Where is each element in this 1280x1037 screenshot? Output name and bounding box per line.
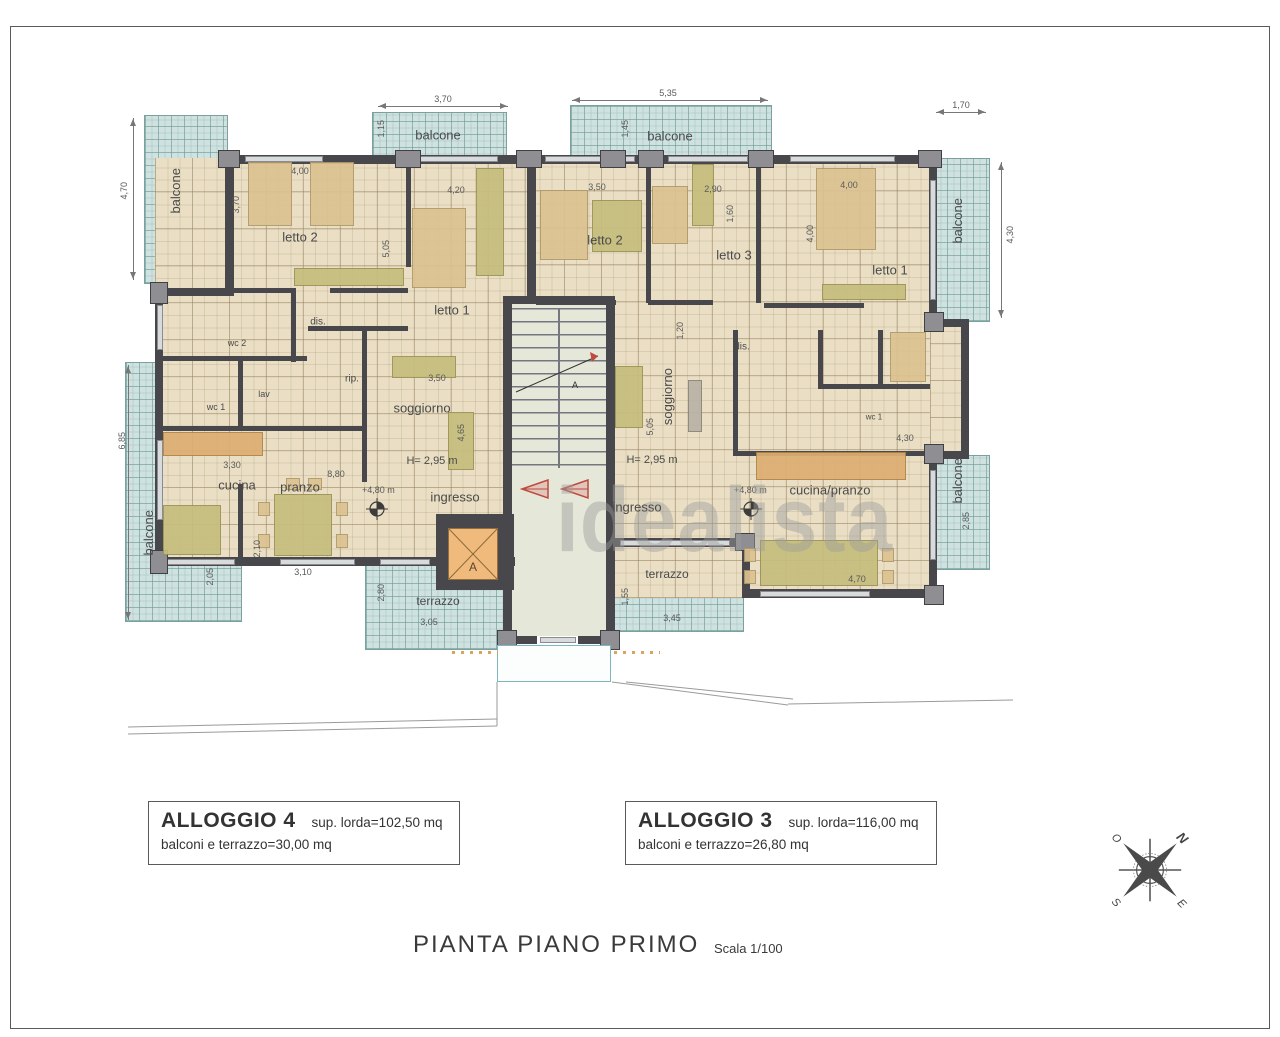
bed [248,162,292,226]
apartment-name: ALLOGGIO 3 [638,809,773,833]
wall [503,296,512,644]
bed [652,186,688,244]
room-label-wc2-a4: wc 2 [228,338,247,348]
level-marker-label: +4,80 m [362,485,395,495]
chair [336,534,348,548]
window [380,559,430,565]
window [418,156,498,162]
dim-label: 6,85 [117,432,127,450]
bath-fixture [890,332,926,382]
wall [155,426,367,431]
dim-label: 4,00 [805,225,815,243]
pier [150,282,168,304]
dim-label: 3,70 [231,196,241,214]
pier [516,150,542,168]
room-label-ingresso-a3: ingresso [612,500,661,515]
wall [291,288,296,362]
stair-divider [558,308,560,468]
room-label-dis-a4: dis. [310,317,326,328]
pier [395,150,421,168]
window [790,156,895,162]
dim-label: 1,55 [620,588,630,606]
drawing-scale: Scala 1/100 [714,941,783,956]
dim-label: 4,65 [456,424,466,442]
section-marker-label: A [572,380,578,390]
wall [238,484,243,560]
wall [406,155,411,267]
dim-label: 3,45 [663,613,681,623]
room-label-pranzo-a4: pranzo [280,480,320,495]
wardrobe [692,164,714,226]
wall [225,155,234,295]
balcony-label: balcone [950,198,965,244]
balcony-label: balcone [141,510,156,556]
room-label-cucina-pranzo-a3: cucina/pranzo [790,483,871,498]
wall [238,360,243,430]
drawing-title: PIANTA PIANO PRIMO [413,931,699,959]
window [157,305,163,350]
wall [648,300,713,305]
bed [310,162,354,226]
pier [924,312,944,332]
room-label-terrazzo-a4: terrazzo [416,594,459,608]
floorplan-sheet: A +4,80 m +4,80 m A ide [0,0,1280,1037]
dim-label: 4,30 [1005,226,1015,244]
cabinet [163,505,221,555]
window [930,470,936,560]
shelf [392,356,456,378]
window [668,156,748,162]
room-label-letto2-a4: letto 2 [282,230,317,245]
dim-label: 1,60 [725,205,735,223]
dim-line [128,365,129,620]
wall [764,303,864,308]
dim-label: 1,15 [376,120,386,138]
dim-label: 2,90 [704,184,722,194]
wall [536,300,616,305]
window [760,591,870,597]
room-label-ingresso-a4: ingresso [430,490,479,505]
pier [748,150,774,168]
wall [756,155,761,303]
dining-table [274,494,332,556]
dim-label: 3,30 [223,460,241,470]
apartment-gross-area: sup. lorda=116,00 mq [789,815,919,830]
balcony-label: balcone [950,458,965,504]
dim-line [378,106,508,107]
balcony-label: balcone [168,168,183,214]
room-label-dis-a3: dis. [734,342,750,353]
dim-label: 5,35 [659,88,677,98]
wall [527,155,536,303]
wall [818,384,930,389]
room-label-soggiorno-a3: soggiorno [660,368,675,425]
threshold-dots [614,651,660,654]
room-label-height-a4: H= 2,95 m [406,455,457,467]
dim-label: 5,05 [645,418,655,436]
compass-o: O [1109,831,1124,846]
wall [330,288,408,293]
dim-label: 1,45 [620,120,630,138]
dim-line [1001,162,1002,318]
pier [218,150,240,168]
wardrobe [476,168,504,276]
dim-line [133,118,134,280]
dim-label: 4,70 [119,182,129,200]
pier [918,150,942,168]
window [280,559,355,565]
dim-label: 4,20 [447,185,465,195]
dim-label: 5,05 [381,240,391,258]
dim-line [936,112,986,113]
dim-label: 2,85 [961,512,971,530]
wall [362,326,367,430]
dim-label: 1,20 [675,322,685,340]
window [930,180,936,300]
pier [924,444,944,464]
dim-label: 3,70 [434,94,452,104]
window [540,637,576,643]
room-label-letto1-a3: letto 1 [872,263,907,278]
kitchen-counter [163,432,263,456]
wall [961,319,969,459]
chair [336,502,348,516]
dim-label: 2,05 [205,568,215,586]
wall [646,155,651,303]
elevator-label: A [469,560,477,574]
dim-label: 3,50 [588,182,606,192]
dim-label: 1,70 [952,100,970,110]
dim-label: 4,70 [848,574,866,584]
dim-label: 3,05 [420,617,438,627]
pier [638,150,664,168]
dim-label: 3,50 [428,373,446,383]
room-label-cucina-a4: cucina [218,478,256,493]
chair [258,502,270,516]
room-label-wc1-a3: wc 1 [866,413,882,422]
wall [233,288,295,293]
balcony-label: balcone [415,128,461,143]
shelf [615,366,643,428]
apartment-3-info-box: ALLOGGIO 3 sup. lorda=116,00 mq balconi … [625,801,937,865]
bed [540,190,588,260]
pier [924,585,944,605]
room-label-wc1-a4: wc 1 [207,402,226,412]
apartment-gross-area: sup. lorda=102,50 mq [312,815,443,830]
dim-label: 2,80 [376,584,386,602]
wall [155,356,307,361]
entrance-canopy [497,645,611,682]
apartment-name: ALLOGGIO 4 [161,809,296,833]
room-label-letto1-a4: letto 1 [434,303,469,318]
dim-label: 4,00 [840,180,858,190]
pier [600,150,626,168]
dim-label: 4,00 [291,166,309,176]
wall [878,330,883,388]
apartment-balcony-area: balconi e terrazzo=30,00 mq [161,837,447,852]
bed [412,208,466,288]
wardrobe [822,284,906,300]
wall [818,330,823,388]
room-label-height-a3: H= 2,95 m [626,454,677,466]
tv-cabinet [688,380,702,432]
threshold-dots [452,651,498,654]
dim-label: 2,10 [252,540,262,558]
dim-label: 3,10 [294,567,312,577]
window [165,559,235,565]
dim-label: 4,30 [896,433,914,443]
dim-line [572,100,768,101]
wall [362,430,367,482]
room-label-lav-a4: lav [258,389,270,399]
room-label-terrazzo-a3: terrazzo [645,567,688,581]
balcony-label: balcone [647,129,693,144]
room-label-rip-a4: rip. [345,374,359,385]
wardrobe [294,268,404,286]
dim-label: 8,80 [327,469,345,479]
room-label-letto3-a3: letto 3 [716,248,751,263]
room-label-soggiorno-a4: soggiorno [393,401,450,416]
apartment-4-info-box: ALLOGGIO 4 sup. lorda=102,50 mq balconi … [148,801,460,865]
room-label-letto2-a3: letto 2 [587,233,622,248]
apartment-balcony-area: balconi e terrazzo=26,80 mq [638,837,924,852]
